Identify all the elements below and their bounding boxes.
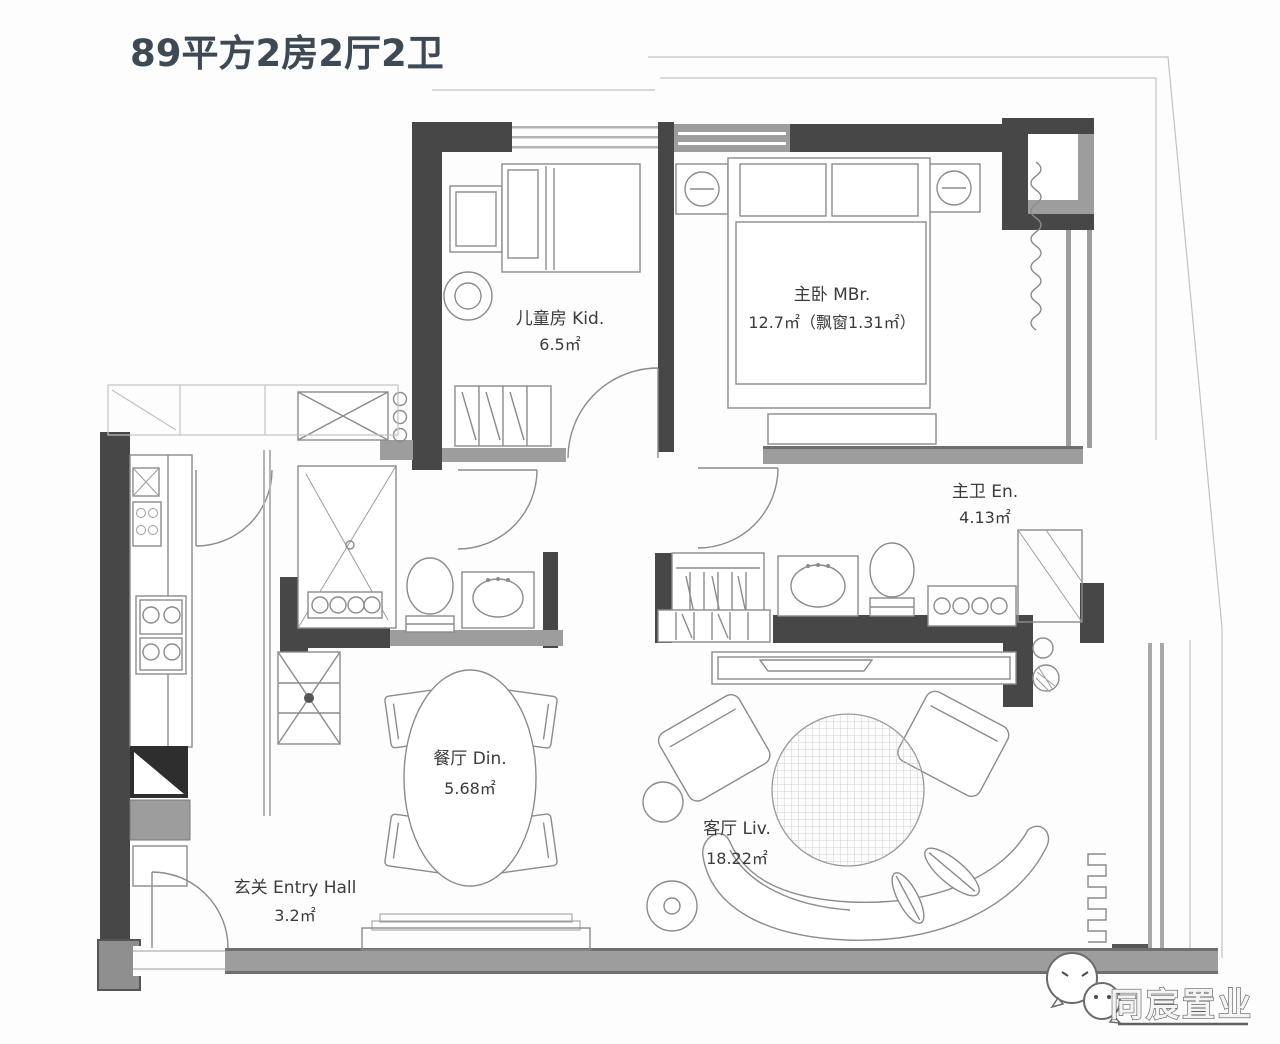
living-room: 客厅 Liv. 18.22㎡ bbox=[643, 610, 1106, 942]
stove bbox=[136, 596, 186, 674]
ensuite-toilet bbox=[870, 543, 914, 597]
floor-plan-canvas: 89平方2房2厅2卫 bbox=[0, 0, 1280, 1044]
toilet bbox=[407, 558, 453, 614]
round-rug bbox=[772, 714, 924, 866]
dining-room: 餐厅 Din. 5.68㎡ bbox=[384, 670, 557, 886]
pendant-symbol bbox=[1033, 638, 1053, 658]
living-area: 18.22㎡ bbox=[706, 849, 768, 868]
living-label: 客厅 Liv. bbox=[703, 819, 771, 839]
shoe-bench bbox=[658, 610, 770, 642]
ensuite-door-arc bbox=[698, 468, 778, 548]
kids-nightstand bbox=[450, 186, 502, 252]
entry-label: 玄关 Entry Hall bbox=[234, 878, 357, 898]
kids-top-window bbox=[512, 126, 658, 149]
kids-room-label: 儿童房 Kid. bbox=[516, 309, 604, 329]
floor-lamp bbox=[647, 881, 697, 931]
bath-door-arc bbox=[458, 470, 537, 549]
dining-area: 5.68㎡ bbox=[444, 779, 496, 798]
column-symbol bbox=[1033, 665, 1059, 691]
dining-label: 餐厅 Din. bbox=[433, 749, 506, 769]
kitchen-door-arc bbox=[196, 470, 272, 546]
brand-logo-text: 同宸置业 bbox=[1110, 985, 1254, 1024]
side-table bbox=[643, 782, 683, 822]
kids-room: 儿童房 Kid. 6.5㎡ bbox=[444, 164, 658, 458]
radiator-squiggle bbox=[1088, 854, 1106, 942]
floor-plan-page: 89平方2房2厅2卫 bbox=[0, 0, 1280, 1044]
bed-bench bbox=[768, 414, 936, 444]
tv bbox=[760, 660, 872, 671]
ensuite-area: 4.13㎡ bbox=[959, 508, 1011, 527]
master-room-area: 12.7㎡（飘窗1.31㎡） bbox=[748, 313, 915, 332]
entry-area: 3.2㎡ bbox=[274, 906, 315, 925]
kids-door-arc bbox=[568, 368, 658, 458]
walls bbox=[98, 118, 1218, 990]
master-bed bbox=[728, 158, 930, 408]
entry-steps bbox=[362, 928, 590, 950]
bath-vanity bbox=[308, 592, 382, 618]
kids-bed bbox=[502, 164, 640, 272]
dining-table bbox=[404, 670, 536, 886]
kids-chair bbox=[444, 272, 492, 320]
kids-room-area: 6.5㎡ bbox=[539, 335, 580, 354]
master-bedroom: 主卧 MBr. 12.7㎡（飘窗1.31㎡） bbox=[676, 158, 1041, 444]
page-title: 89平方2房2厅2卫 bbox=[130, 32, 444, 75]
ensuite-label: 主卫 En. bbox=[952, 482, 1018, 502]
master-room-label: 主卧 MBr. bbox=[794, 285, 871, 305]
